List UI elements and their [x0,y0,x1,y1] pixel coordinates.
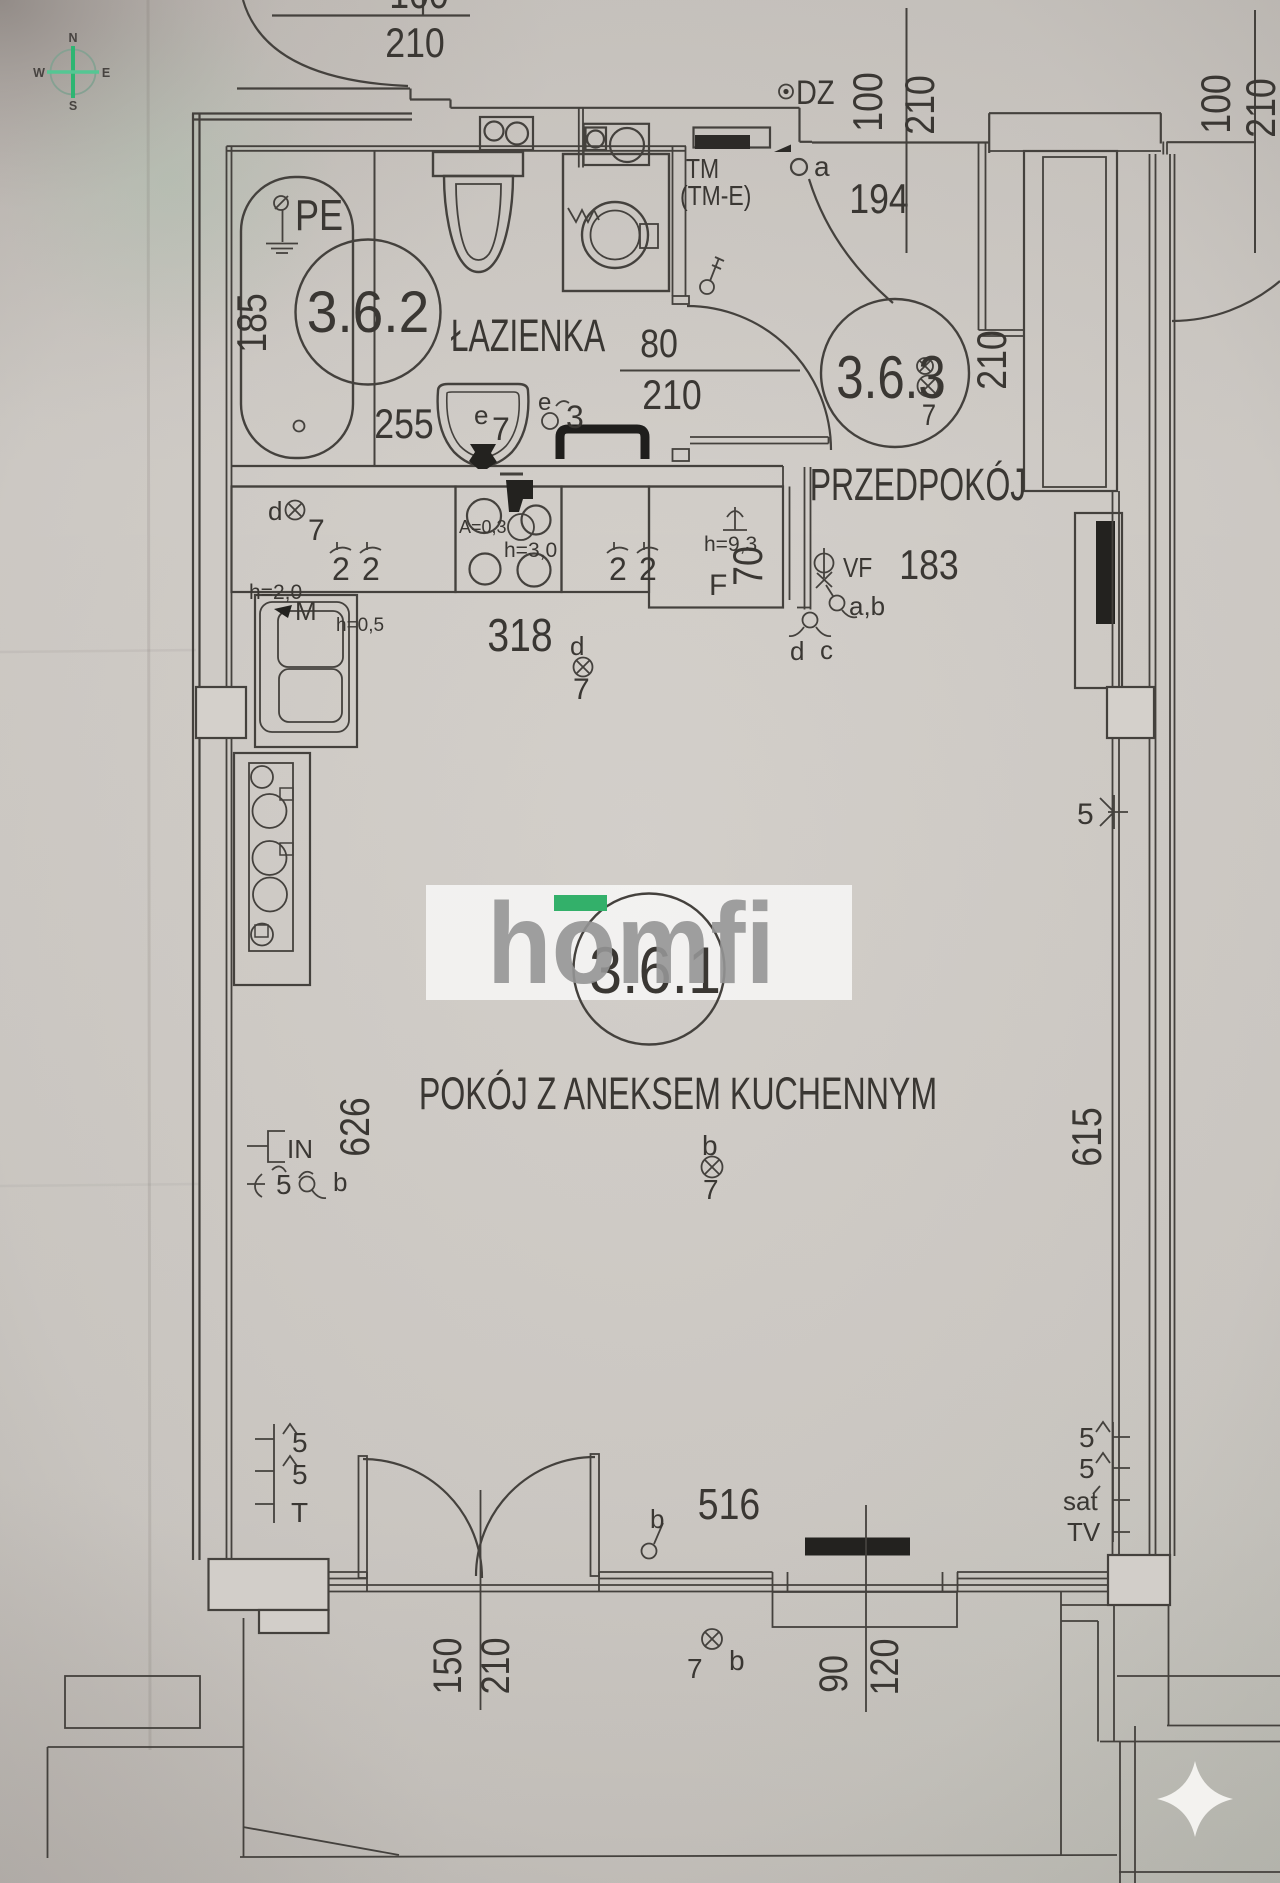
svg-text:7: 7 [703,1174,719,1205]
svg-text:210: 210 [969,330,1015,390]
svg-text:210: 210 [642,372,702,418]
svg-text:2: 2 [639,551,657,587]
svg-text:h=0,5: h=0,5 [336,615,384,636]
svg-text:2: 2 [609,551,627,587]
svg-text:e: e [474,400,488,430]
svg-text:5: 5 [292,1427,308,1458]
svg-text:7: 7 [687,1653,703,1684]
svg-text:194: 194 [849,176,909,222]
svg-text:POKÓJ Z ANEKSEM KUCHENNYM: POKÓJ Z ANEKSEM KUCHENNYM [419,1070,937,1119]
svg-text:c: c [820,635,833,665]
svg-text:5: 5 [1077,798,1094,831]
svg-text:210: 210 [1238,78,1280,138]
svg-text:b: b [333,1167,347,1197]
svg-text:e: e [538,389,551,416]
svg-text:2: 2 [362,551,380,587]
svg-text:b: b [729,1645,745,1676]
svg-text:210: 210 [472,1638,517,1695]
svg-text:100: 100 [1193,74,1239,134]
svg-text:183: 183 [899,542,959,588]
svg-text:185: 185 [229,293,275,353]
svg-text:100: 100 [845,72,891,132]
svg-text:150: 150 [424,1638,469,1695]
svg-text:516: 516 [698,1479,760,1529]
svg-text:5: 5 [1079,1422,1095,1453]
svg-text:210: 210 [385,20,445,66]
svg-text:a,b: a,b [849,591,885,621]
svg-text:d: d [268,496,282,526]
svg-text:T: T [291,1497,308,1528]
svg-text:120: 120 [861,1639,906,1696]
svg-text:PRZEDPOKÓJ: PRZEDPOKÓJ [810,461,1027,511]
svg-text:ŁAZIENKA: ŁAZIENKA [451,312,605,362]
svg-text:TV: TV [1067,1517,1101,1547]
svg-text:S: S [69,99,77,113]
svg-text:M: M [295,596,317,626]
svg-text:5: 5 [1079,1453,1095,1484]
svg-text:318: 318 [487,610,552,662]
svg-text:homfi: homfi [487,880,775,1008]
svg-text:5: 5 [292,1459,308,1490]
svg-text:E: E [102,66,110,80]
svg-text:70: 70 [725,546,771,586]
svg-text:210: 210 [897,75,943,135]
svg-text:255: 255 [374,401,434,447]
svg-text:7: 7 [492,411,510,447]
svg-text:90: 90 [810,1655,855,1693]
svg-text:7: 7 [573,673,590,706]
svg-text:a: a [814,151,830,182]
svg-text:sat: sat [1063,1486,1098,1516]
svg-text:7: 7 [308,514,325,547]
svg-text:5: 5 [276,1169,292,1200]
svg-text:d: d [790,636,804,666]
svg-text:VF: VF [843,553,872,584]
svg-text:2: 2 [332,551,350,587]
svg-text:(TM-E): (TM-E) [680,181,751,212]
svg-text:A=0,3: A=0,3 [459,517,507,537]
svg-text:b: b [650,1504,664,1534]
svg-text:615: 615 [1064,1107,1110,1167]
svg-text:DZ: DZ [796,73,835,112]
svg-text:d: d [570,631,584,661]
svg-text:W: W [33,66,45,80]
svg-text:N: N [68,31,77,45]
svg-text:626: 626 [332,1097,378,1157]
svg-text:3.6.2: 3.6.2 [307,280,430,345]
svg-text:PE: PE [295,191,343,240]
svg-text:100: 100 [389,0,449,18]
svg-text:80: 80 [640,320,678,365]
svg-text:IN: IN [287,1134,313,1164]
svg-text:h=3,0: h=3,0 [504,539,557,562]
svg-text:3: 3 [566,399,584,435]
svg-text:7: 7 [922,398,936,431]
